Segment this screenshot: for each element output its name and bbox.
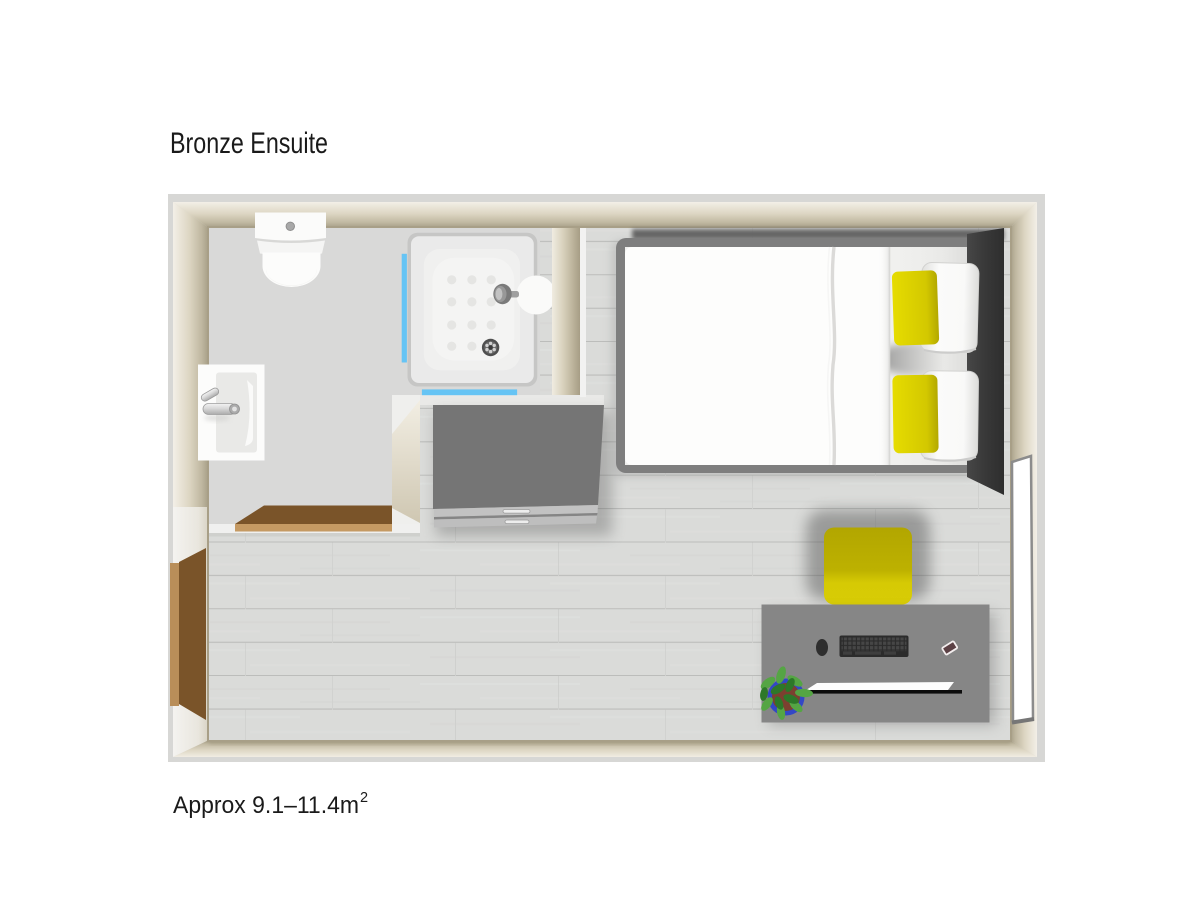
svg-text:Bronze Ensuite: Bronze Ensuite	[170, 127, 328, 160]
svg-text:2: 2	[360, 790, 368, 806]
svg-text:Approx 9.1–11.4m: Approx 9.1–11.4m	[173, 792, 359, 819]
